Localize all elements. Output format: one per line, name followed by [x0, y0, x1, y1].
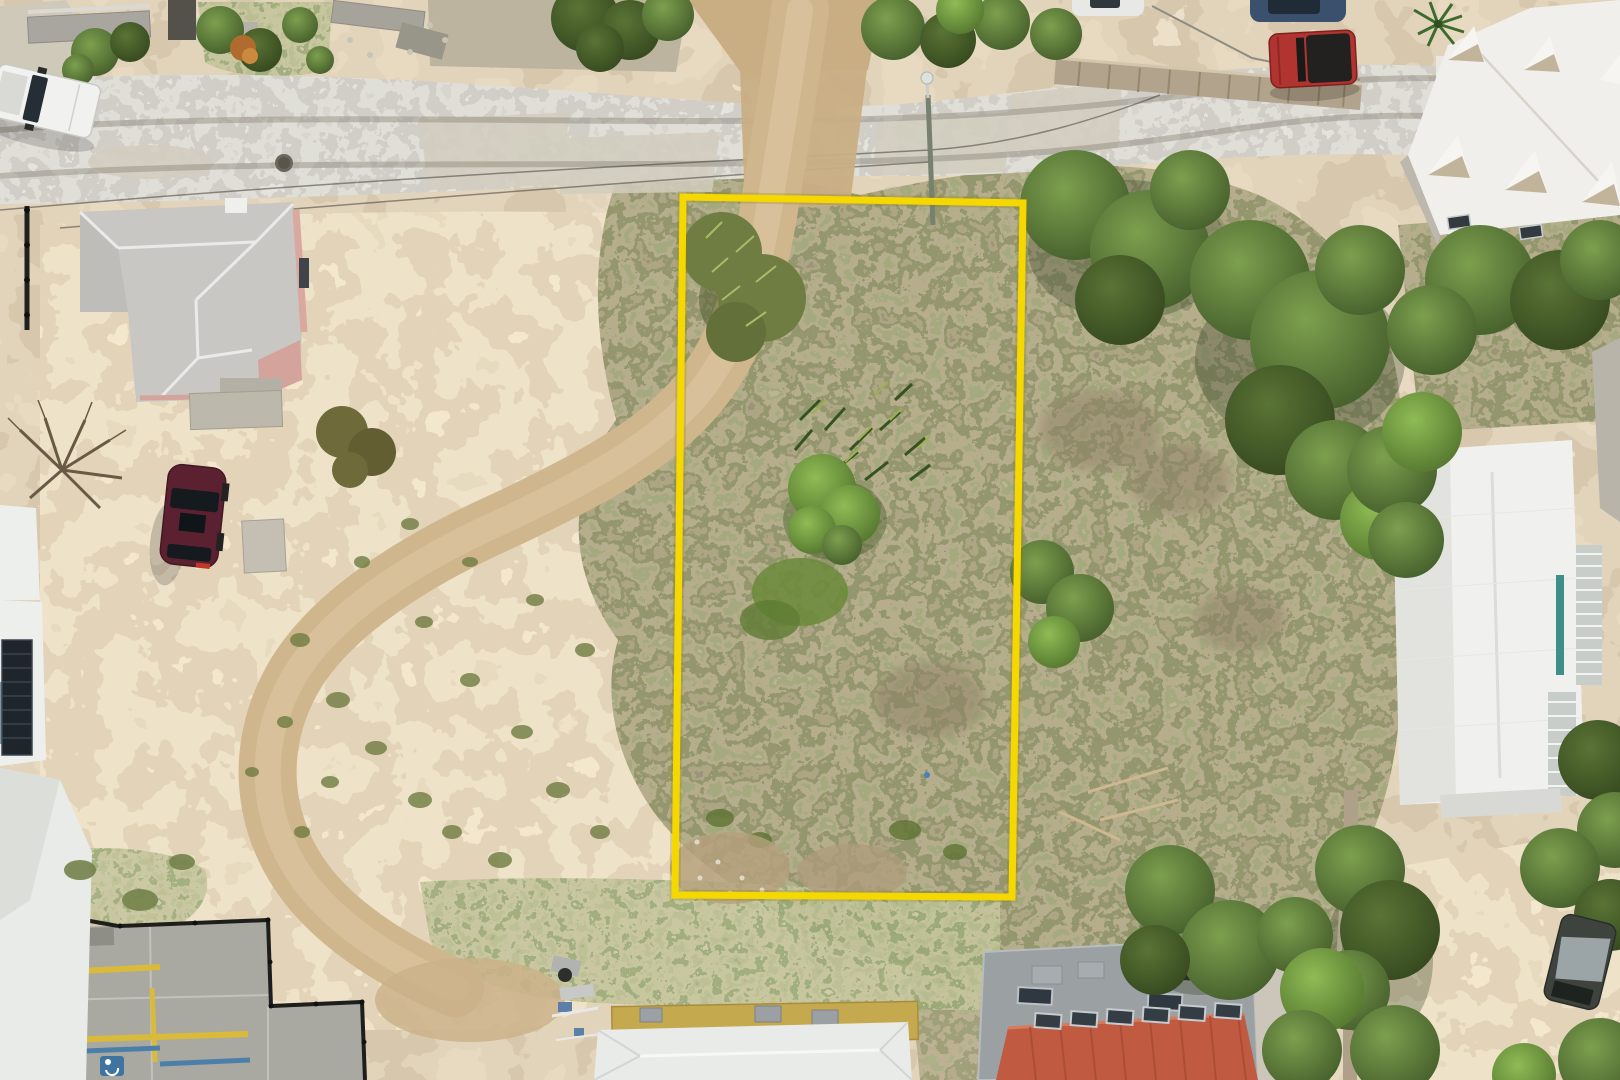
- manhole-inner: [278, 157, 290, 169]
- window-shutter: [299, 258, 309, 288]
- concrete-pad: [242, 519, 287, 573]
- red-jeep: [1267, 30, 1360, 104]
- lamp-stem: [927, 84, 928, 98]
- dark-gate: [168, 0, 196, 40]
- concrete-slab: [189, 390, 282, 429]
- handicap-symbol: [100, 1056, 124, 1076]
- sedan-sunroof: [178, 513, 206, 534]
- moss-patch-2: [740, 600, 800, 640]
- skylight-upper-1: [1018, 987, 1053, 1005]
- ac-unit-1: [1032, 966, 1062, 984]
- blue-car-windows: [1268, 0, 1320, 14]
- street-lamp-head: [921, 72, 933, 84]
- handicap-glyph: [105, 1059, 111, 1065]
- track-bottom-wash: [375, 958, 565, 1042]
- teal-trim: [1556, 575, 1564, 675]
- white-roof-sliver: [0, 505, 40, 600]
- jeep-soft-top: [1306, 33, 1352, 83]
- aerial-photo: [0, 0, 1620, 1080]
- dormer-building: [1400, 0, 1620, 248]
- chimney: [225, 198, 247, 213]
- white-car-window: [1090, 0, 1120, 8]
- ac-unit-2: [1078, 962, 1104, 978]
- blue-speck: [924, 772, 930, 778]
